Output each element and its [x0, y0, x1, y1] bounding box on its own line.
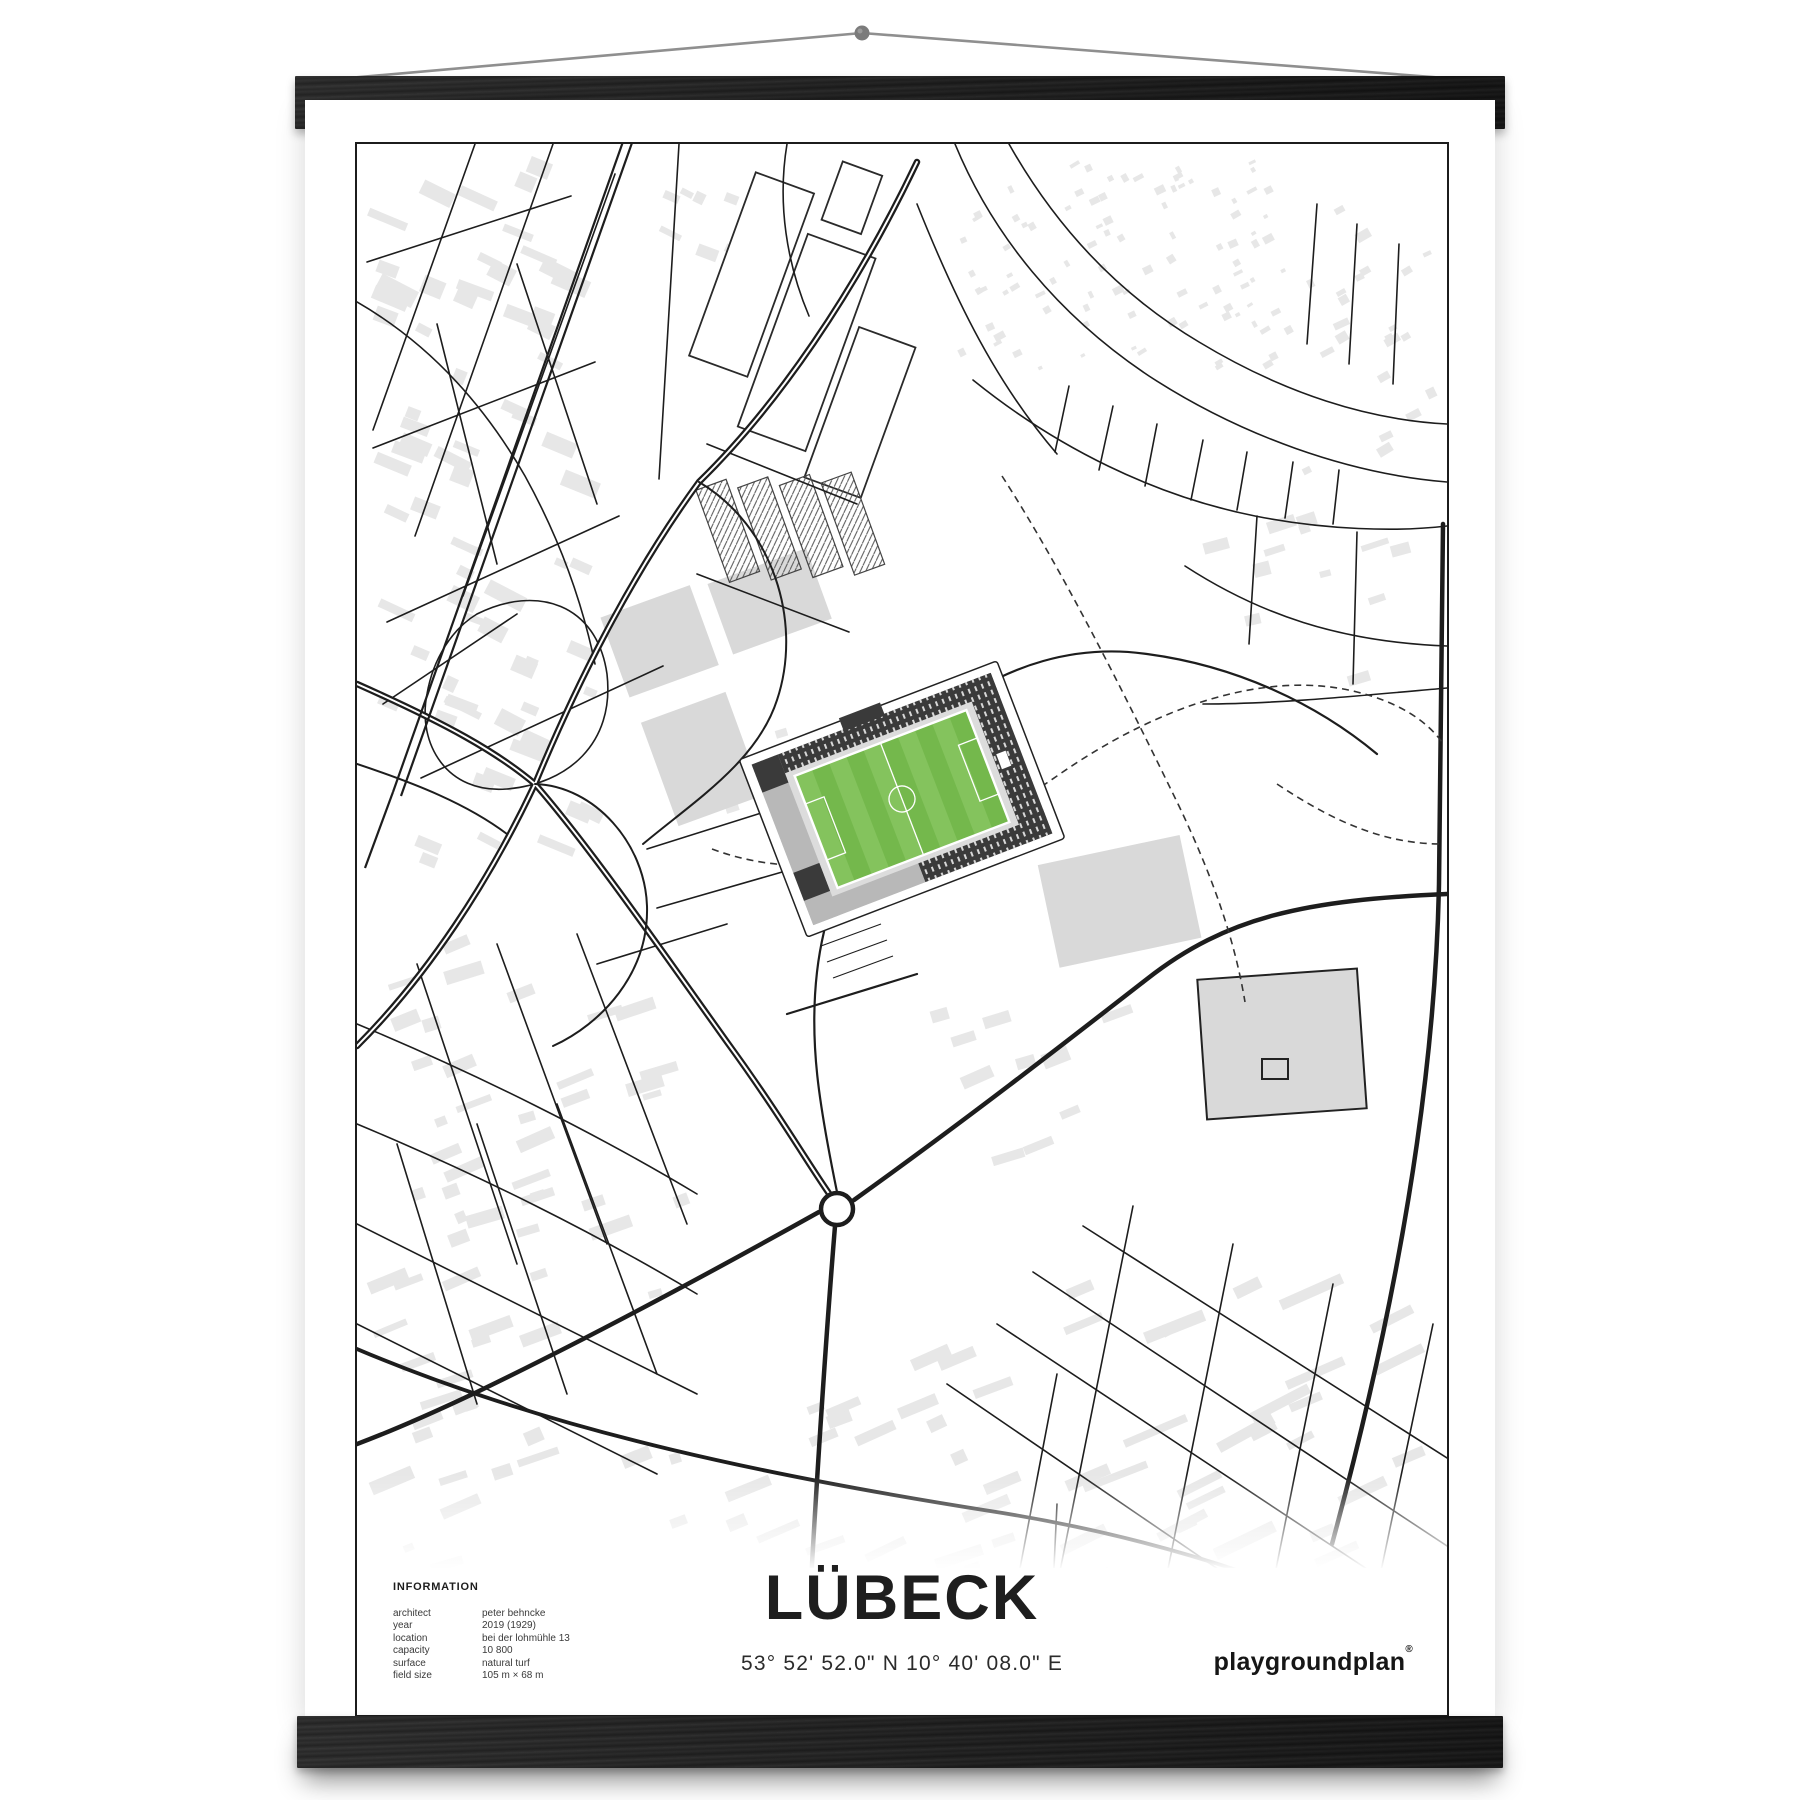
brand-mark: ® — [1405, 1644, 1413, 1655]
title-block: LÜBECK — [357, 1567, 1447, 1630]
map-stadium — [738, 658, 1065, 937]
map-roundabout — [821, 1193, 853, 1225]
info-row: locationbei der lohmühle 13 — [393, 1633, 570, 1645]
poster: INFORMATION architectpeter behnckeyear20… — [305, 100, 1495, 1718]
hanger-bar-bottom — [297, 1716, 1503, 1768]
brand-logo: playgroundplan® — [1214, 1644, 1413, 1677]
poster-frame: INFORMATION architectpeter behnckeyear20… — [355, 142, 1449, 1717]
poster-product-photo: INFORMATION architectpeter behnckeyear20… — [0, 0, 1800, 1800]
brand-name: playgroundplan — [1214, 1648, 1406, 1676]
nail-icon — [855, 26, 870, 41]
poster-title: LÜBECK — [357, 1567, 1447, 1630]
stadium-street-map — [357, 144, 1447, 1715]
